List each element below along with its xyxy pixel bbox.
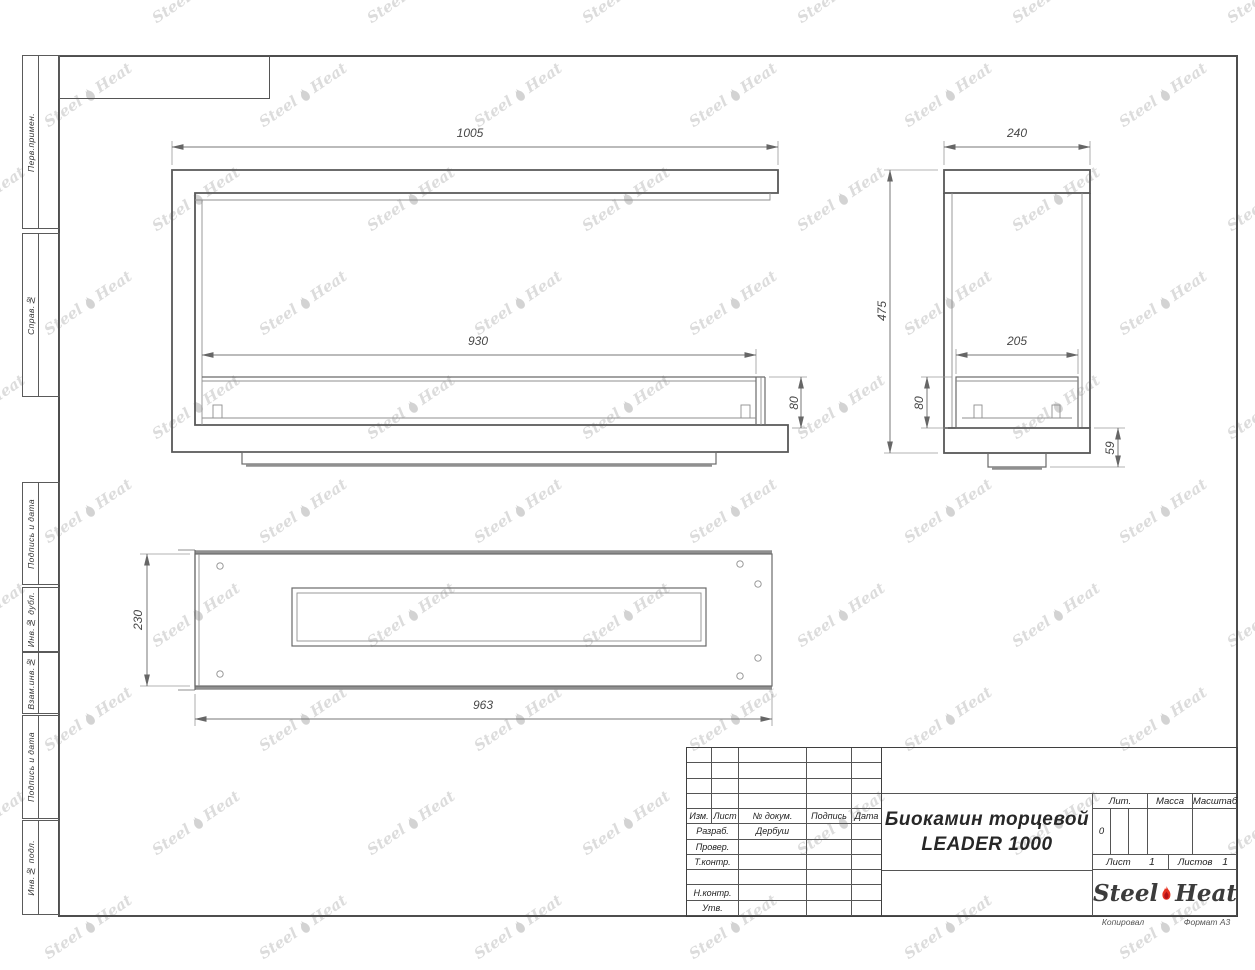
sheets-cell: Листов 1 [1169, 855, 1237, 870]
row-razrab-value: Дербуш [739, 824, 807, 839]
dim-side-burner-depth: 205 [987, 334, 1047, 348]
sheet-number: 1 [1149, 856, 1155, 868]
mass-value-cell [1148, 809, 1193, 855]
drawing-title-cell: Биокамин торцевой LEADER 1000 [882, 794, 1093, 870]
drawing-title-line2: LEADER 1000 [921, 834, 1052, 856]
logo-heat-text: Heat [1175, 880, 1237, 907]
margin-box-podpis-data-1: Подпись и дата [22, 482, 60, 585]
scale-value-cell [1193, 809, 1237, 855]
logo-steel-text: Steel [1093, 880, 1158, 907]
scale-header: Масштаб [1193, 794, 1237, 809]
dim-side-depth: 240 [987, 126, 1047, 140]
title-block: Изм. Лист № докум. Подпись Дата Разраб. … [686, 747, 1238, 917]
title-block-approval-table: Изм. Лист № докум. Подпись Дата Разраб. … [687, 748, 882, 916]
lit-value-cell: 0 [1093, 809, 1111, 855]
col-izm: Изм. [687, 809, 712, 824]
organization-cell [882, 870, 1093, 916]
dim-side-burner-height: 80 [912, 383, 926, 423]
document-designation-cell [882, 748, 1237, 794]
designation-box [58, 55, 270, 99]
margin-box-label: Взам.инв.№ [23, 653, 39, 713]
margin-box-label: Инв.№ дубл. [23, 588, 39, 651]
dim-plan-length: 963 [453, 698, 513, 712]
copied-label: Копировал [1088, 917, 1158, 927]
margin-box-podpis-data-2: Подпись и дата [22, 715, 60, 819]
row-razrab-label: Разраб. [687, 824, 739, 839]
margin-box-label: Справ.№ [23, 234, 39, 396]
row-utv-label: Утв. [687, 901, 739, 916]
dim-front-burner-height: 80 [787, 383, 801, 423]
company-logo: Steel Heat [1093, 870, 1237, 916]
row-nkontr-label: Н.контр. [687, 885, 739, 900]
dim-front-width: 1005 [440, 126, 500, 140]
format-label: Формат А3 [1172, 917, 1242, 927]
drawing-sheet: SteelHeatSteelHeatSteelHeatSteelHeatStee… [0, 0, 1255, 970]
lit-header: Лит. [1093, 794, 1148, 809]
margin-box-sprav-no: Справ.№ [22, 233, 60, 397]
sheet-cell: Лист 1 [1093, 855, 1169, 870]
margin-box-label: Подпись и дата [23, 716, 39, 818]
margin-box-inv-dubl: Инв.№ дубл. [22, 587, 60, 652]
margin-box-vzam-inv: Взам.инв.№ [22, 652, 60, 714]
sheets-total: 1 [1222, 856, 1228, 868]
mass-header: Масса [1148, 794, 1193, 809]
title-block-right: Лит. Масса Масштаб 0 Лист 1 Листов 1 Ste… [1093, 794, 1237, 916]
margin-box-label: Инв.№ подл. [23, 821, 39, 914]
margin-box-label: Перв.примен. [23, 56, 39, 228]
flame-icon [1160, 880, 1173, 906]
margin-box-perv-primen: Перв.примен. [22, 55, 60, 229]
dim-front-burner-width: 930 [448, 334, 508, 348]
col-data: Дата [852, 809, 881, 824]
col-docnum: № докум. [739, 809, 807, 824]
dim-plan-depth: 230 [131, 600, 145, 640]
margin-box-label: Подпись и дата [23, 483, 39, 584]
dim-side-base-height: 59 [1103, 428, 1117, 468]
dim-side-height: 475 [875, 291, 889, 331]
col-podpis: Подпись [807, 809, 852, 824]
row-prover-label: Провер. [687, 840, 739, 855]
col-list: Лист [712, 809, 739, 824]
margin-box-inv-podl: Инв.№ подл. [22, 820, 60, 915]
drawing-title-line1: Биокамин торцевой [885, 809, 1089, 831]
row-tkontr-label: Т.контр. [687, 855, 739, 870]
